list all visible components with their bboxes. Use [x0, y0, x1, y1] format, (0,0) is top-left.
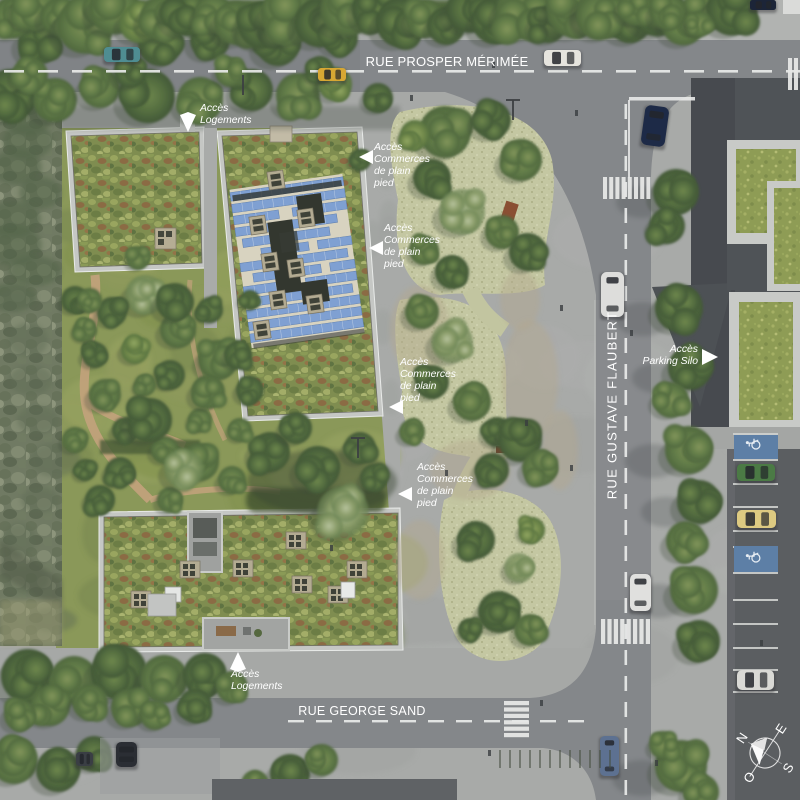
svg-text:RUE GUSTAVE FLAUBERT: RUE GUSTAVE FLAUBERT [605, 311, 620, 500]
svg-text:RUE PROSPER MÉRIMÉE: RUE PROSPER MÉRIMÉE [366, 54, 529, 69]
svg-text:RUE GEORGE SAND: RUE GEORGE SAND [298, 704, 425, 718]
